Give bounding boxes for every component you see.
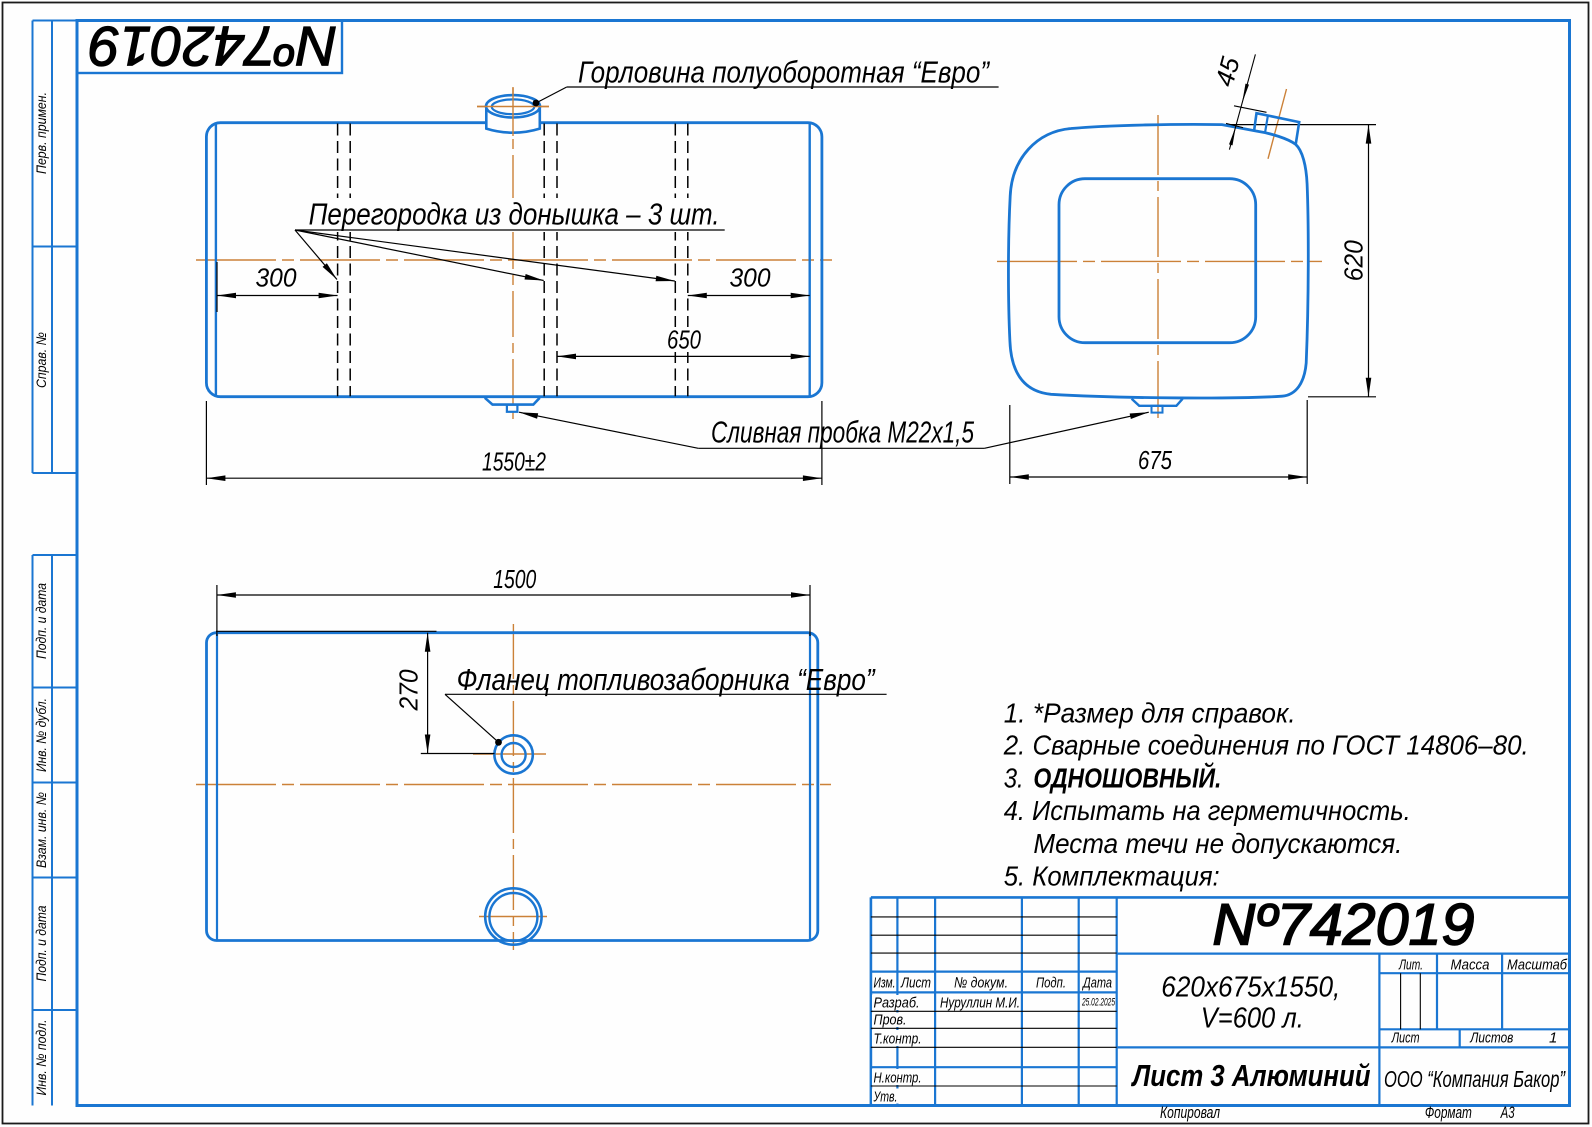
svg-text:Горловина полуоборотная “Евро”: Горловина полуоборотная “Евро”	[578, 54, 990, 89]
svg-text:Инв. № подл.: Инв. № подл.	[33, 1020, 49, 1096]
svg-text:3.: 3.	[1004, 762, 1024, 793]
svg-text:Nº742019: Nº742019	[89, 15, 337, 78]
svg-text:Копировал: Копировал	[1160, 1103, 1220, 1122]
svg-text:Изм.: Изм.	[874, 975, 896, 992]
svg-text:Масштаб: Масштаб	[1507, 956, 1567, 973]
svg-text:1. *Размер для справок.: 1. *Размер для справок.	[1004, 698, 1296, 729]
svg-text:Формат: Формат	[1425, 1103, 1472, 1122]
svg-text:Дата: Дата	[1082, 975, 1112, 992]
svg-text:V=600 л.: V=600 л.	[1201, 1003, 1304, 1035]
svg-text:Места течи не допускаются.: Места течи не допускаются.	[1033, 828, 1402, 859]
svg-text:270: 270	[394, 669, 424, 711]
svg-text:4. Испытать на герметичность.: 4. Испытать на герметичность.	[1004, 795, 1411, 826]
svg-text:Лист: Лист	[900, 975, 931, 992]
svg-text:300: 300	[256, 263, 298, 293]
svg-text:Лист 3 Алюминий: Лист 3 Алюминий	[1131, 1058, 1371, 1093]
svg-text:Пров.: Пров.	[874, 1012, 907, 1029]
svg-text:Листов: Листов	[1470, 1030, 1514, 1047]
svg-text:Масса: Масса	[1451, 956, 1490, 973]
svg-text:Перв. примен.: Перв. примен.	[33, 92, 49, 174]
svg-text:Т.контр.: Т.контр.	[874, 1031, 922, 1048]
svg-text:675: 675	[1138, 445, 1172, 475]
svg-text:ООО “Компания Бакор”: ООО “Компания Бакор”	[1384, 1066, 1566, 1092]
svg-text:Справ. №: Справ. №	[33, 332, 49, 388]
svg-text:650: 650	[667, 325, 701, 355]
svg-text:Подп. и дата: Подп. и дата	[33, 583, 49, 659]
svg-text:Фланец топливозаборника “Евро”: Фланец топливозаборника “Евро”	[457, 662, 876, 697]
svg-text:1: 1	[1549, 1030, 1557, 1047]
svg-text:Подп.: Подп.	[1036, 975, 1066, 992]
svg-text:620х675х1550,: 620х675х1550,	[1161, 972, 1340, 1004]
svg-text:Сливная пробка М22х1,5: Сливная пробка М22х1,5	[711, 415, 975, 450]
svg-text:5. Комплектация:: 5. Комплектация:	[1004, 860, 1220, 891]
svg-text:№ докум.: № докум.	[954, 975, 1008, 992]
svg-text:ОДНОШОВНЫЙ.: ОДНОШОВНЫЙ.	[1033, 761, 1221, 793]
svg-text:Лит.: Лит.	[1398, 956, 1423, 973]
svg-text:Nº742019: Nº742019	[1212, 893, 1474, 958]
svg-text:Лист: Лист	[1391, 1030, 1420, 1047]
svg-text:А3: А3	[1500, 1103, 1515, 1122]
svg-text:Н.контр.: Н.контр.	[874, 1070, 922, 1087]
svg-text:300: 300	[730, 263, 772, 293]
svg-text:Инв. № дубл.: Инв. № дубл.	[33, 698, 49, 772]
svg-text:620: 620	[1339, 240, 1369, 282]
svg-text:Перегородка из донышка – 3 шт.: Перегородка из донышка – 3 шт.	[309, 197, 720, 232]
svg-text:Подп. и дата: Подп. и дата	[33, 905, 49, 981]
svg-text:Нуруллин М.И.: Нуруллин М.И.	[940, 995, 1020, 1012]
svg-text:1550±2: 1550±2	[482, 447, 546, 477]
svg-text:Утв.: Утв.	[873, 1089, 898, 1106]
svg-text:25.02.2025: 25.02.2025	[1081, 997, 1115, 1009]
svg-text:1500: 1500	[493, 564, 536, 594]
svg-text:Взам. инв. №: Взам. инв. №	[33, 792, 49, 868]
svg-text:Разраб.: Разраб.	[874, 995, 920, 1012]
svg-text:2. Сварные соединения по ГОСТ: 2. Сварные соединения по ГОСТ 14806–80.	[1003, 730, 1529, 761]
